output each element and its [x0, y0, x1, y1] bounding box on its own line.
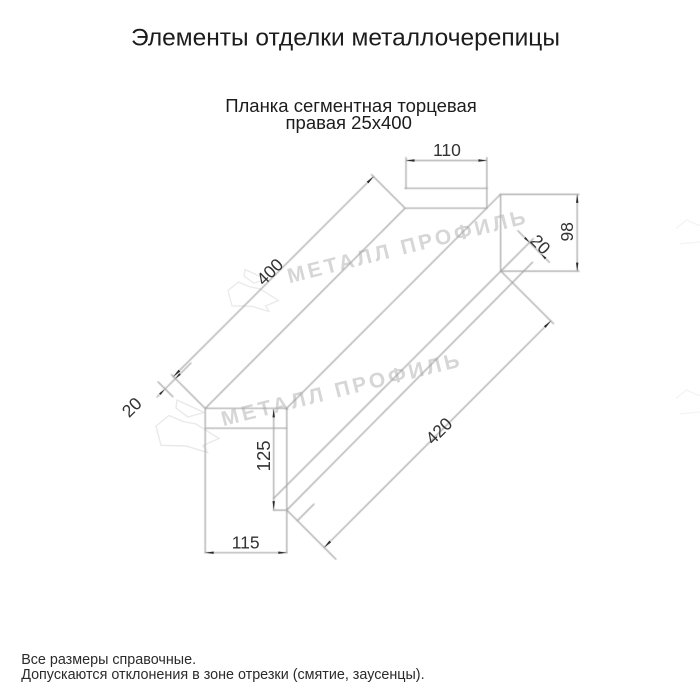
svg-text:110: 110 — [433, 140, 461, 160]
svg-text:125: 125 — [253, 440, 274, 471]
svg-text:Элементы отделки металлочерепи: Элементы отделки металлочерепицы — [131, 24, 560, 51]
svg-text:правая 25х400: правая 25х400 — [286, 112, 412, 133]
svg-text:115: 115 — [232, 533, 260, 553]
svg-text:Допускаются отклонения в зоне: Допускаются отклонения в зоне отрезки (с… — [21, 667, 424, 683]
svg-text:98: 98 — [557, 222, 577, 241]
svg-text:Все размеры справочные.: Все размеры справочные. — [21, 652, 196, 668]
